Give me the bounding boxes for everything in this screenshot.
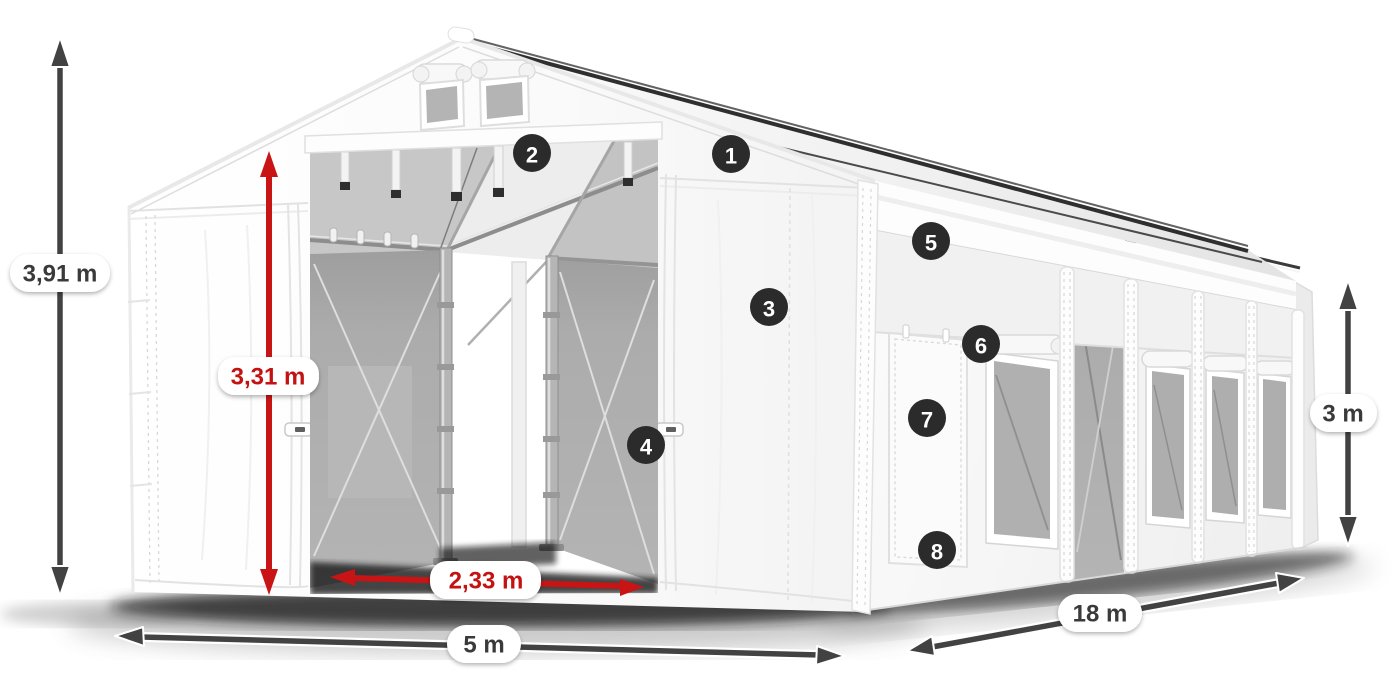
handle-slot xyxy=(295,427,305,432)
door-hook-strap xyxy=(903,325,909,338)
ground-shadow-left-spill xyxy=(0,602,190,626)
callout-4[interactable]: 4 xyxy=(627,426,665,464)
handle-slot xyxy=(666,427,676,432)
dimension-label-entrance-width: 2,33 m xyxy=(449,568,524,595)
callout-8[interactable]: 8 xyxy=(918,531,956,569)
vent-bar-cap xyxy=(413,66,429,82)
vent-mesh xyxy=(426,86,458,123)
strap xyxy=(340,152,350,190)
side-window-1 xyxy=(977,335,1067,549)
arrowhead-right xyxy=(816,646,845,665)
arrowhead-left xyxy=(907,636,935,656)
callout-1[interactable]: 1 xyxy=(712,135,750,173)
diagram-canvas: 3,91 m 3,31 m 2,33 m 5 m xyxy=(0,0,1400,700)
wall-post xyxy=(1124,279,1138,573)
callout-2[interactable]: 2 xyxy=(513,134,551,172)
dimension-total-height: 3,91 m xyxy=(10,37,110,596)
callout-1-number: 1 xyxy=(725,144,737,169)
gable-vent-1 xyxy=(413,64,472,130)
dimension-label-front-width: 5 m xyxy=(463,632,504,659)
strap xyxy=(493,146,504,197)
gable-vent-2 xyxy=(471,60,535,126)
interior-mesh-right xyxy=(556,260,658,584)
window-mesh xyxy=(1263,379,1286,510)
callout-6[interactable]: 6 xyxy=(962,325,1000,363)
callout-7-number: 7 xyxy=(921,408,933,433)
tent-dimension-diagram: 3,91 m 3,31 m 2,33 m 5 m xyxy=(0,0,1400,700)
side-window-2 xyxy=(1142,351,1194,528)
dimension-side-height: 3 m xyxy=(1310,280,1377,546)
side-window-3 xyxy=(1203,356,1248,523)
tent-illustration xyxy=(128,26,1318,614)
callout-5[interactable]: 5 xyxy=(912,222,950,260)
side-door-panel xyxy=(889,333,967,567)
callout-8-number: 8 xyxy=(931,540,943,565)
arrowhead-down xyxy=(50,566,70,596)
side-door xyxy=(889,325,967,567)
vent-bar-cap xyxy=(471,62,487,78)
wall-post xyxy=(1060,267,1074,582)
dimension-label-side-height: 3 m xyxy=(1322,401,1363,428)
callout-7[interactable]: 7 xyxy=(908,399,946,437)
callout-3-number: 3 xyxy=(763,297,775,322)
strap xyxy=(391,150,401,198)
window-roll-bar xyxy=(1255,361,1295,375)
arrowhead-down xyxy=(1338,516,1358,546)
window-roll-bar xyxy=(1142,351,1194,367)
callout-2-number: 2 xyxy=(526,143,538,168)
strap xyxy=(623,142,633,186)
side-window-4 xyxy=(1255,361,1295,518)
callout-5-number: 5 xyxy=(925,231,937,256)
arrowhead-up xyxy=(50,37,70,67)
dimension-label-side-length: 18 m xyxy=(1073,601,1128,628)
wall-post xyxy=(1292,310,1304,549)
dimension-label-total-height: 3,91 m xyxy=(23,261,98,288)
wall-post xyxy=(1246,301,1257,556)
dimension-label-entrance-height: 3,31 m xyxy=(231,364,306,391)
front-opening-interior xyxy=(310,137,658,595)
window-roll-bar xyxy=(1203,356,1248,371)
callout-6-number: 6 xyxy=(975,334,987,359)
wall-post xyxy=(1192,291,1204,563)
arrowhead-up xyxy=(1338,280,1358,310)
callout-3[interactable]: 3 xyxy=(750,288,788,326)
far-door-post xyxy=(512,262,526,547)
strap xyxy=(451,148,462,201)
door-hook-strap xyxy=(943,329,949,342)
vent-mesh xyxy=(486,82,523,119)
left-door-handle[interactable] xyxy=(285,423,312,436)
callout-4-number: 4 xyxy=(640,435,653,460)
interior-mesh-left xyxy=(310,250,447,588)
